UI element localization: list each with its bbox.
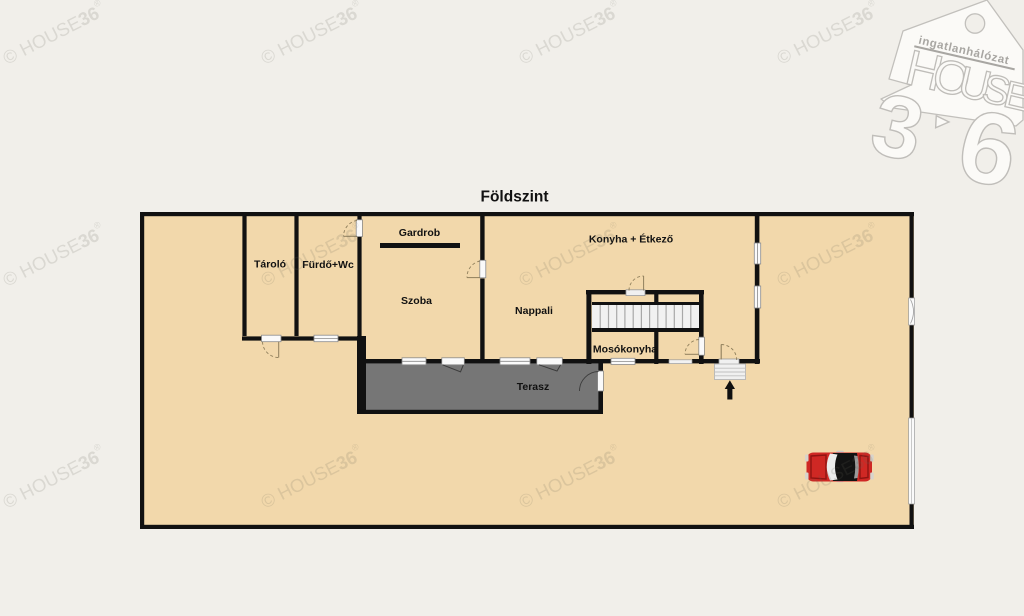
svg-text:Nappali: Nappali <box>515 305 553 317</box>
svg-text:Terasz: Terasz <box>517 381 550 393</box>
svg-text:Gardrob: Gardrob <box>399 227 440 239</box>
svg-text:Szoba: Szoba <box>401 295 432 307</box>
svg-text:Földszint: Földszint <box>480 189 548 206</box>
svg-text:Mosókonyha: Mosókonyha <box>593 344 657 356</box>
